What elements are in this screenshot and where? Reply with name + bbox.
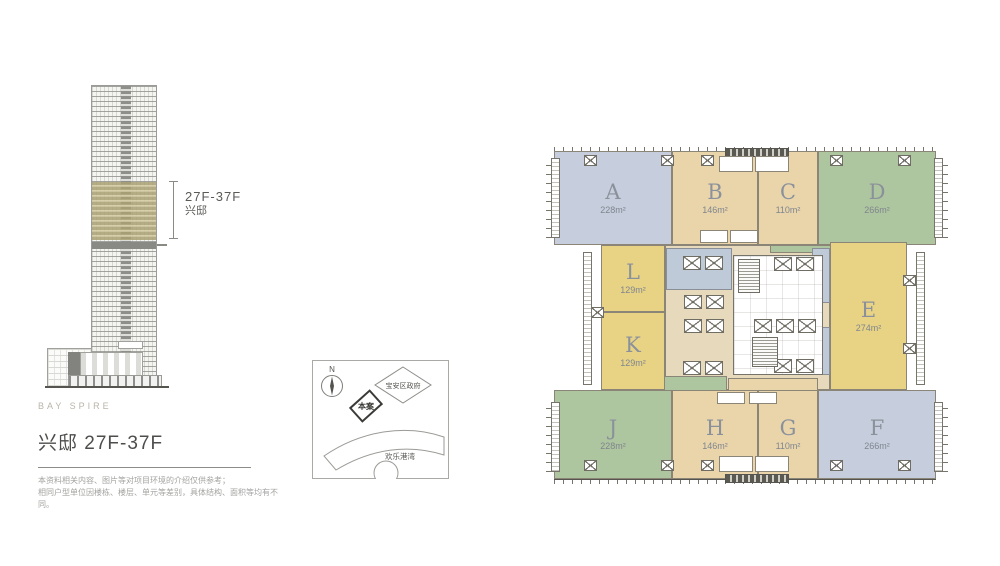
column-icon (898, 155, 911, 166)
balcony (717, 392, 745, 404)
stair-icon (752, 337, 778, 367)
column-icon (903, 343, 916, 354)
unit-f-area: 266m² (864, 441, 890, 451)
landmark-government-label: 宝安区政府 (386, 381, 421, 390)
column-icon (701, 460, 714, 471)
column-icon (830, 155, 843, 166)
unit-e: E 274m² (830, 242, 907, 390)
column-icon (661, 460, 674, 471)
unit-g-letter: G (780, 418, 797, 439)
unit-c-area: 110m² (776, 205, 801, 215)
disclaimer-line-1: 本资料相关内容、图片等对项目环境的介绍仅供参考； (38, 475, 278, 487)
podium-dark-slab (68, 352, 80, 375)
unit-b-letter: B (707, 182, 722, 203)
ground-line (45, 386, 169, 388)
unit-a: A 228m² (554, 151, 672, 245)
elevator-icon (705, 361, 723, 375)
unit-d-letter: D (869, 182, 886, 203)
elevator-icon (684, 295, 702, 309)
unit-e-letter: E (861, 300, 876, 321)
floor-range-callout: 27F-37F 兴邸 (185, 189, 241, 219)
column-icon (701, 155, 714, 166)
page-title: 兴邸 27F-37F (38, 428, 278, 455)
balcony (749, 392, 777, 404)
unit-j-area: 228m² (600, 441, 626, 451)
project-site-label: 本案 (357, 401, 375, 411)
brand-logotype: BAY SPIRE (38, 401, 278, 411)
unit-l-area: 129m² (620, 285, 646, 295)
floor-range-label: 27F-37F (185, 189, 241, 205)
unit-l: L 129m² (601, 245, 665, 312)
unit-a-area: 228m² (600, 205, 626, 215)
unit-k-area: 129m² (620, 358, 646, 368)
compass-north-label: N (329, 365, 335, 374)
canopy-ledge (157, 244, 167, 246)
podium-checker-block (80, 352, 143, 377)
facade-ticks-right-top (943, 158, 948, 238)
louver-fins (551, 402, 560, 472)
balcony (755, 156, 789, 172)
stair-icon (738, 259, 760, 293)
unit-a-letter: A (605, 182, 620, 203)
louver-fins (583, 252, 592, 385)
unit-e-area: 274m² (856, 323, 882, 333)
column-icon (903, 275, 916, 286)
elevator-icon (754, 319, 772, 333)
refuge-floor-band (92, 242, 156, 249)
louver-fins (916, 252, 925, 385)
elevator-icon (706, 295, 724, 309)
landmark-bay-label: 欢乐港湾 (385, 451, 415, 461)
elevator-icon (796, 359, 814, 373)
floor-range-name: 兴邸 (185, 205, 241, 219)
building-elevation (45, 82, 275, 394)
unit-j-letter: J (609, 418, 617, 439)
range-bracket-cap-bottom (169, 238, 178, 239)
column-icon (898, 460, 911, 471)
unit-j: J 228m² (554, 390, 672, 479)
unit-k: K 129m² (601, 312, 665, 390)
unit-b-area: 146m² (702, 205, 728, 215)
balcony (755, 456, 789, 472)
elevator-icon (705, 256, 723, 270)
unit-k-letter: K (625, 335, 641, 356)
highlighted-floors-band (92, 182, 156, 240)
column-icon (661, 155, 674, 166)
column-icon (591, 307, 604, 318)
elevator-icon (706, 319, 724, 333)
disclaimer-line-2: 相同户型单位因楼栋、楼层、单元等差别，具体结构、面积等均有不同。 (38, 487, 278, 511)
brochure-page: 27F-37F 兴邸 BAY SPIRE 兴邸 27F-37F 本资料相关内容、… (0, 0, 1000, 566)
elevator-icon (776, 319, 794, 333)
louver-fins (934, 158, 943, 238)
facade-ticks-right-bottom (943, 402, 948, 472)
unit-c-letter: C (780, 182, 796, 203)
title-divider (38, 467, 251, 468)
floor-plate-plan: A 228m² B 146m² C 110m² D 266m² L 129m² … (546, 147, 948, 483)
unit-h-letter: H (706, 418, 724, 439)
column-icon (830, 460, 843, 471)
unit-h-area: 146m² (702, 441, 728, 451)
elevator-icon (798, 319, 816, 333)
site-location-map: N 宝安区政府 本案 欢乐港湾 (312, 360, 449, 479)
unit-l-letter: L (626, 262, 640, 283)
range-bracket-cap-top (169, 181, 178, 182)
title-block: BAY SPIRE 兴邸 27F-37F 本资料相关内容、图片等对项目环境的介绍… (38, 401, 278, 511)
unit-d-area: 266m² (864, 205, 890, 215)
balcony (700, 230, 728, 243)
column-icon (584, 460, 597, 471)
balcony (730, 230, 758, 243)
podium-roof-box (118, 341, 143, 349)
range-bracket-line (173, 181, 174, 239)
balcony (719, 156, 753, 172)
unit-g-area: 110m² (776, 441, 801, 451)
column-icon (584, 155, 597, 166)
roof-vent-strip-bottom (725, 474, 789, 483)
elevator-icon (796, 257, 814, 271)
elevator-icon (774, 257, 792, 271)
elevator-icon (683, 256, 701, 270)
louver-fins (934, 402, 943, 472)
elevator-icon (683, 361, 701, 375)
elevator-icon (684, 319, 702, 333)
unit-f-letter: F (870, 418, 885, 439)
louver-fins (551, 158, 560, 238)
balcony (719, 456, 753, 472)
